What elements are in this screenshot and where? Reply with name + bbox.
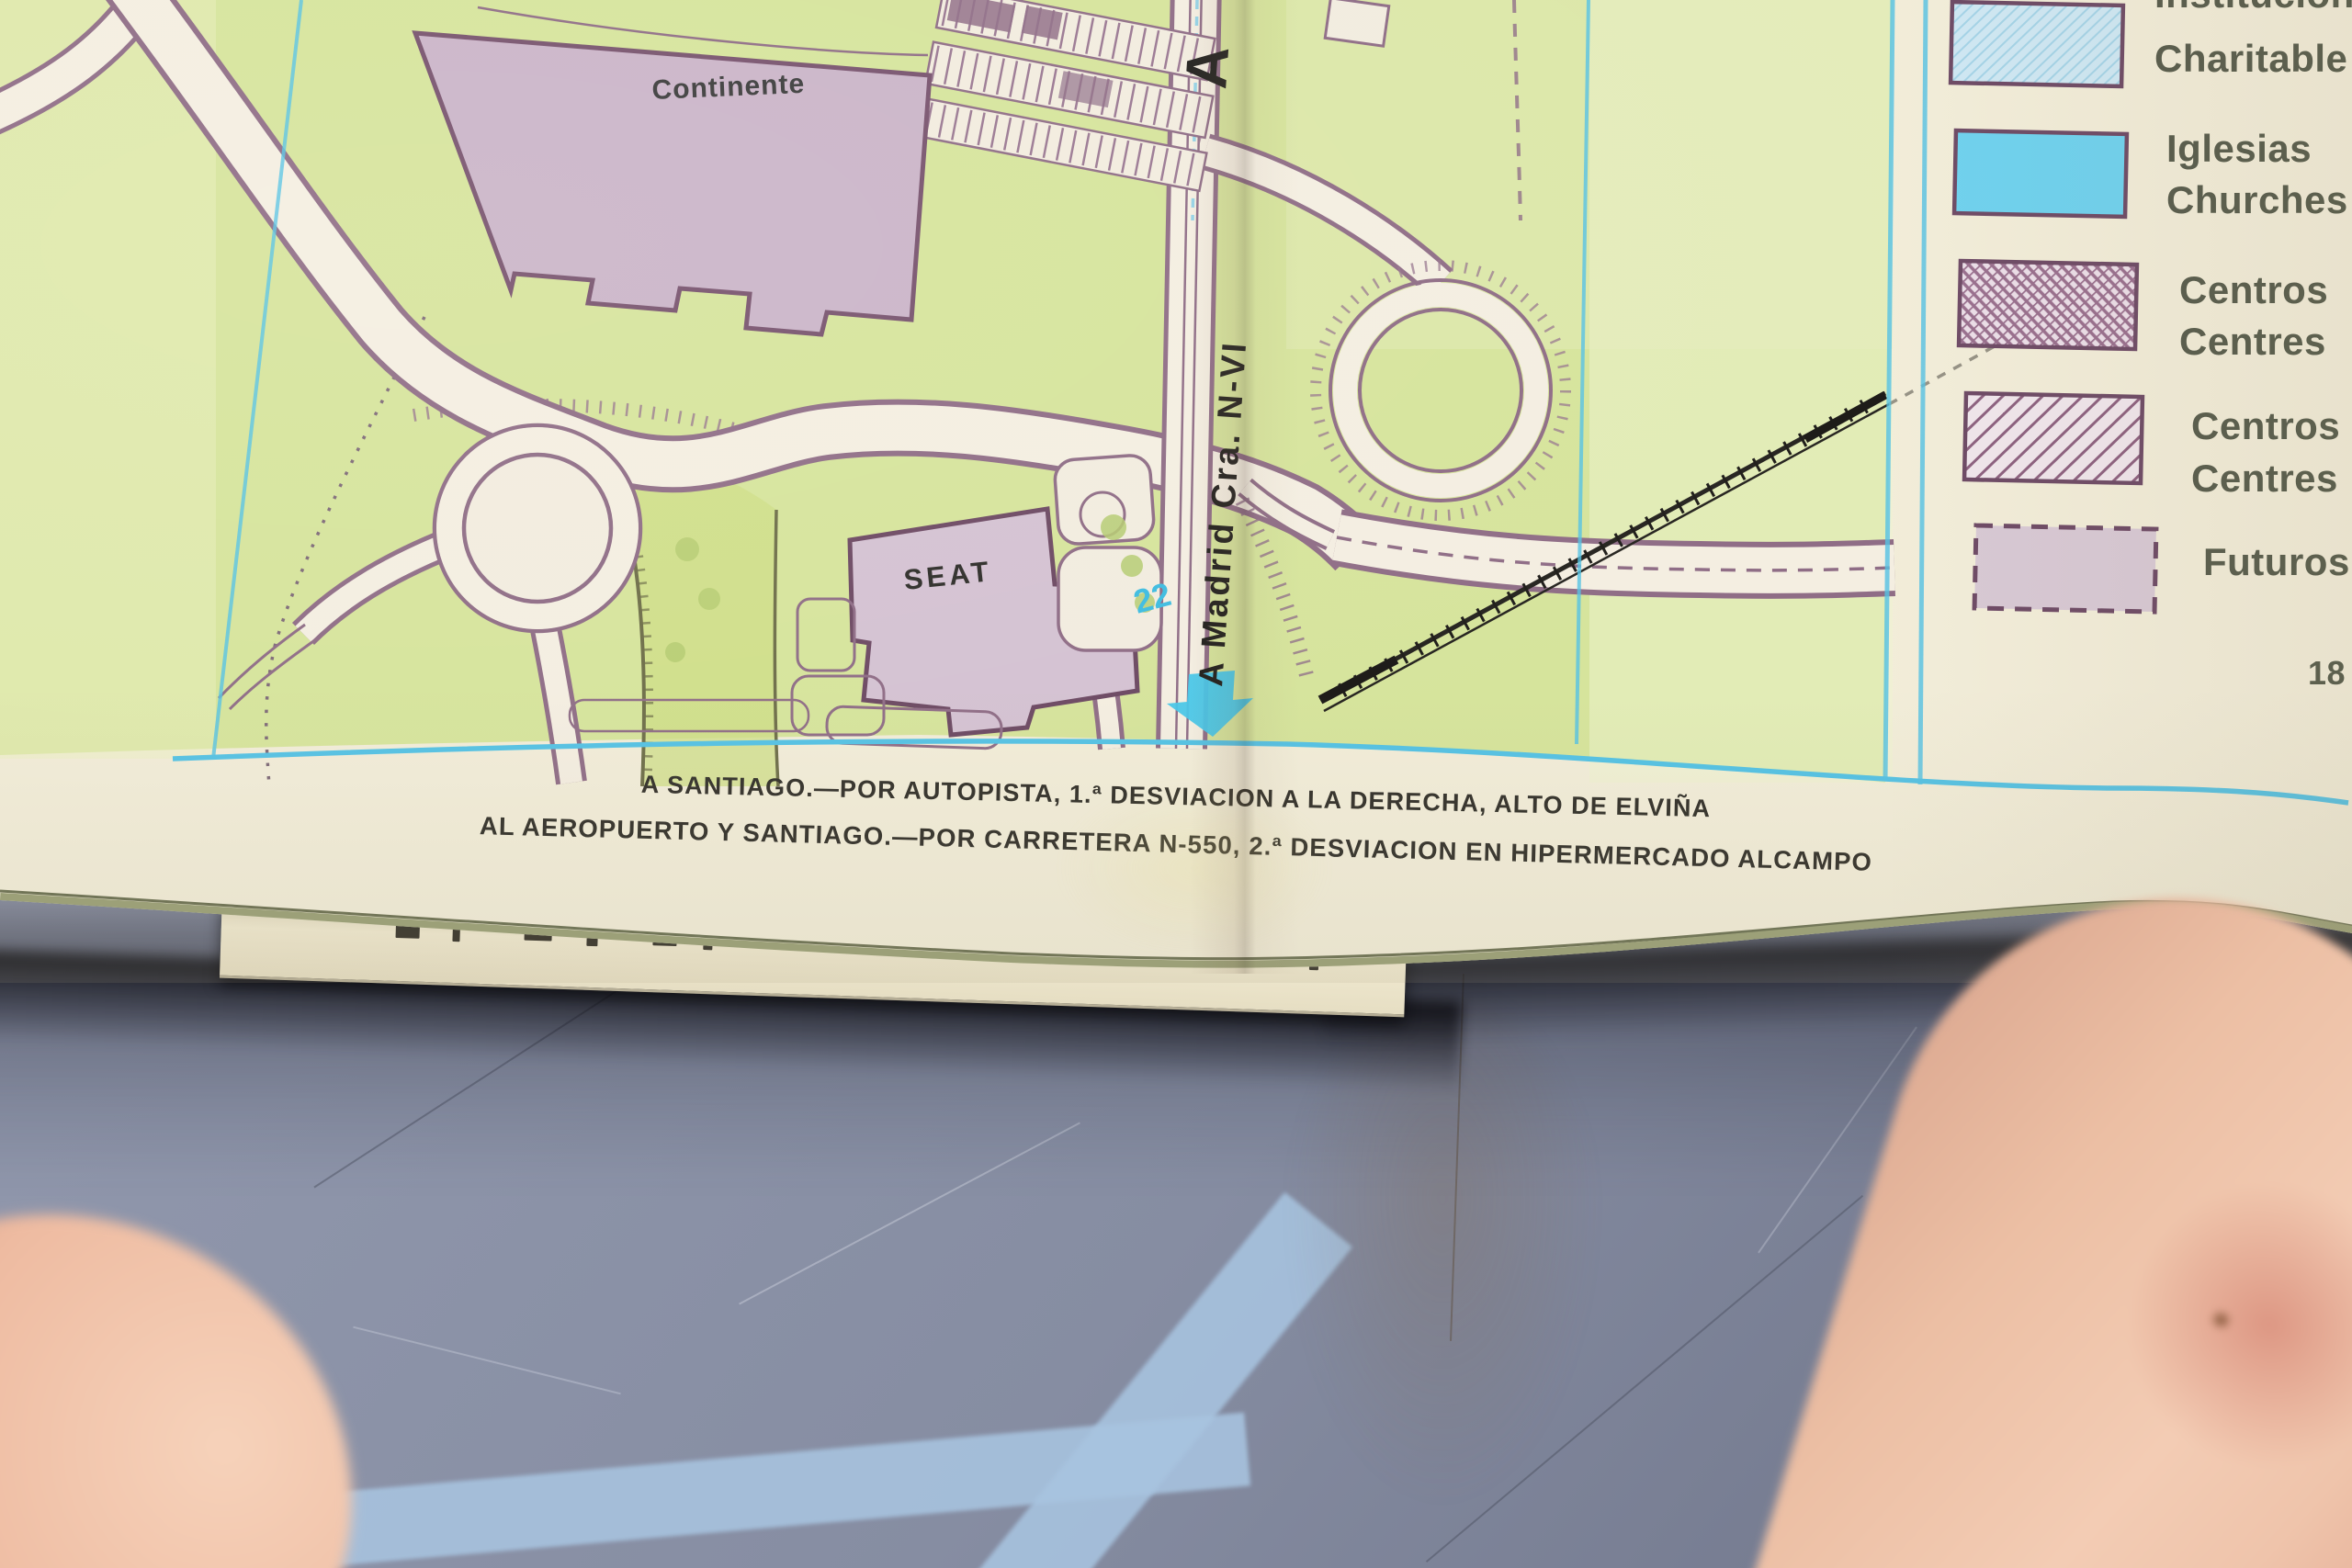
legend-swatch-centres-2 <box>1964 393 2143 483</box>
legend-swatch-institutions <box>1951 2 2123 86</box>
legend-swatch-future <box>1974 525 2156 612</box>
photo-of-folded-city-map: Continente SEAT <box>0 0 2352 1568</box>
legend-label-future: Futuros <box>2203 540 2350 584</box>
small-building <box>1325 0 1389 46</box>
legend-label-institutions-1: Instituciones <box>2154 0 2352 17</box>
roundabout <box>435 425 640 631</box>
legend-label-centres2-2: Centres <box>2191 457 2338 501</box>
legend-label-centres1-2: Centres <box>2179 320 2326 364</box>
page-number: 18 <box>2308 654 2346 693</box>
legend-label-centres1-1: Centros <box>2179 268 2328 312</box>
legend-label-churches-1: Iglesias <box>2166 127 2312 171</box>
fold-glare <box>1057 781 1332 955</box>
legend-label-centres2-1: Centros <box>2191 404 2340 448</box>
surface-scratch <box>353 1326 621 1395</box>
legend-swatch-centres-1 <box>1959 261 2137 349</box>
legend-label-churches-2: Churches <box>2166 178 2348 222</box>
legend-swatch-churches <box>1954 130 2127 217</box>
legend-label-institutions-2: Charitable <box>2154 37 2347 81</box>
